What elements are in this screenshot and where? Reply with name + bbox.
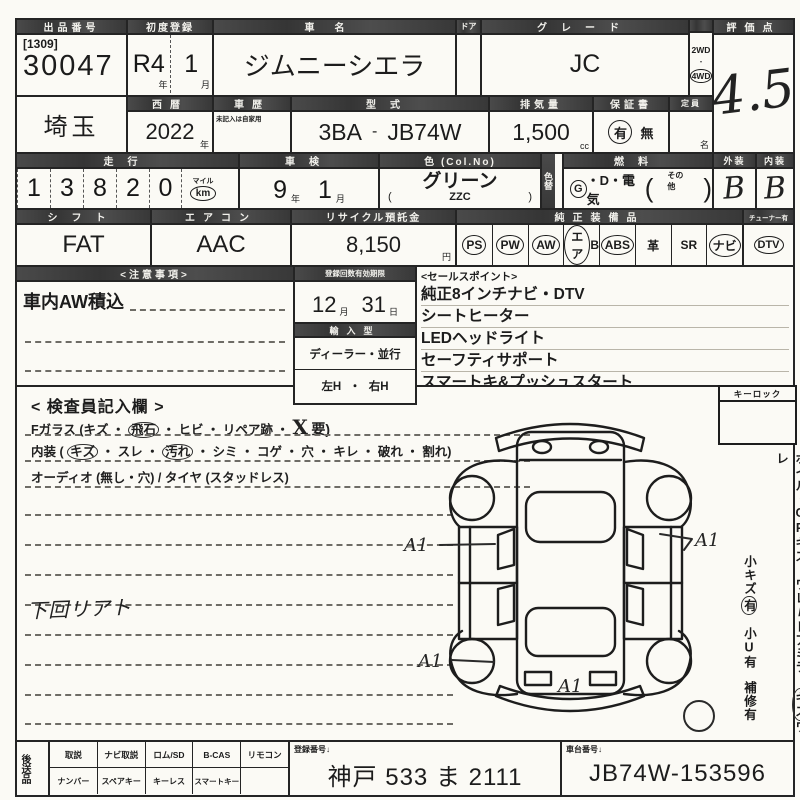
color-change-box: 色替 bbox=[540, 152, 564, 210]
recycle-box: リサイクル預託金 8,150 円 bbox=[290, 208, 457, 267]
shaken-box: 車検 9 年 1 月 bbox=[238, 152, 380, 210]
accessory-cell: キーレス bbox=[145, 768, 193, 794]
car-name-box: 車名 ジムニーシエラ bbox=[212, 18, 457, 97]
first-registration-box: 初度登録 R4 年 1 月 bbox=[126, 18, 214, 97]
windshield bbox=[526, 492, 615, 542]
a1-arrow-left bbox=[440, 544, 495, 545]
seireki-header: 西暦 bbox=[128, 97, 212, 112]
a1-arrow-right bbox=[660, 534, 692, 550]
model-header: 型式 bbox=[292, 97, 488, 112]
chassis-number-label: 車台番号↓ bbox=[562, 742, 793, 755]
interior-condition-line: 内装 ( キズ ・ スレ ・ 汚れ ・ シミ ・ コゲ ・ 穴 ・ キレ ・ 破… bbox=[31, 441, 451, 460]
shift-header: シフト bbox=[17, 210, 150, 225]
hand-drawn-circle bbox=[684, 701, 714, 731]
recycle-amount: 8,150 bbox=[346, 232, 401, 258]
fuel-box: 燃料 G ・D・電気 ( その他 ) bbox=[562, 152, 714, 210]
a1-mark: A1 bbox=[693, 530, 719, 551]
ac-value: AAC bbox=[196, 231, 245, 259]
accessory-cell: B-CAS bbox=[192, 742, 240, 767]
a1-mark: A1 bbox=[402, 535, 428, 556]
color-change-label: 色替 bbox=[542, 154, 555, 208]
prefecture-box: 埼玉 bbox=[15, 95, 128, 154]
accessory-cell: 取説 bbox=[50, 742, 97, 767]
registration-number-box: 登録番号↓ 神戸 533 ま 2111 bbox=[288, 740, 562, 797]
accessory-cell: ナビ取説 bbox=[97, 742, 145, 767]
auction-number-box: 出品番号 [1309] 30047 bbox=[15, 18, 128, 97]
capacity-box: 定員 名 bbox=[668, 95, 714, 154]
exterior-box: 外装 B bbox=[712, 152, 757, 210]
interior-grade-box: 内装 B bbox=[755, 152, 795, 210]
model-box: 型式 3BA - JB74W bbox=[290, 95, 490, 154]
shaken-month: 1 bbox=[318, 176, 332, 205]
shaken-year: 9 bbox=[273, 176, 287, 205]
validity-day: 31 bbox=[362, 292, 386, 318]
drive-2wd: 2WD bbox=[692, 45, 711, 55]
score-header: 評価点 bbox=[714, 20, 793, 35]
car-name-header: 車名 bbox=[214, 20, 455, 35]
grade-value: JC bbox=[570, 50, 601, 79]
sales-point-item: セーフティサポート bbox=[421, 350, 789, 372]
registration-number: 神戸 533 ま 2111 bbox=[328, 757, 523, 792]
interior-grade-handwritten: B bbox=[763, 170, 787, 206]
equipment-header: 純正装備品 bbox=[457, 210, 742, 225]
tuner-dtv-circled: DTV bbox=[754, 236, 784, 254]
lot-bracket: [1309] bbox=[23, 37, 120, 51]
validity-month: 12 bbox=[312, 292, 336, 318]
accessory-cell: スマートキー bbox=[192, 768, 240, 794]
history-box: 車歴 未記入は自家用 bbox=[212, 95, 292, 154]
door-box: ドア bbox=[455, 18, 482, 97]
color-name: グリーン bbox=[422, 172, 497, 191]
displacement-box: 排気量 1,500 cc bbox=[488, 95, 594, 154]
equipment-item-aw: AW bbox=[528, 225, 564, 265]
headlight-left bbox=[533, 441, 551, 453]
wheel-circled-ari: 有 bbox=[741, 596, 757, 616]
auction-sheet: 出品番号 [1309] 30047 初度登録 R4 年 1 月 車名 ジムニーシ… bbox=[0, 0, 800, 800]
shift-value: FAT bbox=[62, 231, 104, 259]
mileage-digit: 2 bbox=[126, 174, 140, 203]
color-box: 色 (Col.No) グリーン ( ZZC ) bbox=[378, 152, 542, 210]
equipment-item-leather: 革 bbox=[635, 225, 671, 265]
sales-point-item: シートヒーター bbox=[421, 306, 789, 328]
ac-box: エアコン AAC bbox=[150, 208, 292, 267]
accessory-cell: スペアキー bbox=[97, 768, 145, 794]
accessory-cell bbox=[240, 768, 288, 794]
a1-arrow-lower-left bbox=[452, 660, 494, 662]
sales-points-box: <セールスポイント> 純正8インチナビ・DTV シートヒーター LEDヘッドライ… bbox=[415, 265, 795, 387]
sales-point-item: 純正8インチナビ・DTV bbox=[421, 284, 789, 306]
warranty-header: 保証書 bbox=[594, 97, 668, 112]
exterior-grade-handwritten: B bbox=[722, 170, 746, 206]
inspector-title: < 検査員記入欄 > bbox=[31, 393, 165, 417]
fuel-header: 燃料 bbox=[564, 154, 712, 169]
registration-number-label: 登録番号↓ bbox=[290, 742, 560, 755]
equipment-item-abs: ABS bbox=[599, 225, 635, 265]
accessory-cell: リモコン bbox=[240, 742, 288, 767]
sales-points-label: <セールスポイント> bbox=[417, 267, 793, 284]
grade-header: グレード bbox=[482, 20, 688, 35]
displacement-value: 1,500 bbox=[512, 119, 570, 146]
ac-header: エアコン bbox=[152, 210, 290, 225]
headlight-right bbox=[590, 441, 608, 453]
prefecture: 埼玉 bbox=[44, 107, 100, 142]
caution-notes-header: <注意事項> bbox=[17, 267, 293, 282]
history-header: 車歴 bbox=[214, 97, 290, 112]
import-type-header: 輸入型 bbox=[295, 324, 415, 338]
rear-window bbox=[526, 608, 615, 656]
mileage-box: 走行 1 3 8 2 0 マイル km bbox=[15, 152, 240, 210]
tuner-header: チューナー有 bbox=[744, 210, 793, 225]
small-damage-notes-column: 小キズ有小U有補修有 bbox=[740, 555, 759, 735]
warranty-box: 保証書 有 無 bbox=[592, 95, 670, 154]
shift-box: シフト FAT bbox=[15, 208, 152, 267]
later-items-label: 後送品 bbox=[17, 742, 32, 795]
sales-point-item: LEDヘッドライト bbox=[421, 328, 789, 350]
tuner-box: チューナー有 DTV bbox=[742, 208, 795, 267]
warranty-yes-circled: 有 bbox=[608, 120, 632, 144]
warranty-no: 無 bbox=[640, 123, 653, 142]
interior-circled-kizu: キズ bbox=[67, 444, 98, 460]
fuel-g-circled: G bbox=[570, 180, 587, 198]
km-circled: km bbox=[190, 186, 216, 201]
a1-mark: A1 bbox=[416, 651, 442, 672]
auction-number-header: 出品番号 bbox=[17, 20, 126, 35]
model-code: 3BA bbox=[319, 119, 362, 146]
underbody-handwritten-note: 下回リアト bbox=[27, 591, 133, 624]
handle-position-row: 左H ・ 右H bbox=[295, 370, 415, 401]
registration-validity-box: 登録回数有効期限 12 月 31 日 bbox=[293, 265, 417, 324]
first-reg-year: R4 bbox=[133, 50, 165, 79]
score-handwritten: 4.5 bbox=[709, 58, 798, 128]
wheel-front-right bbox=[647, 476, 691, 520]
car-top-view-diagram: A1 A1 A1 A1 bbox=[392, 398, 742, 738]
chassis-number-box: 車台番号↓ JB74W-153596 bbox=[560, 740, 795, 797]
displacement-header: 排気量 bbox=[490, 97, 592, 112]
shaken-header: 車検 bbox=[240, 154, 378, 169]
audio-tire-line: オーディオ (無し・穴) / タイヤ (スタッドレス) bbox=[31, 467, 289, 486]
wheel-front-left bbox=[450, 476, 494, 520]
grade-box: グレード JC bbox=[480, 18, 690, 97]
mileage-header: 走行 bbox=[17, 154, 238, 169]
later-items-box: 後送品 bbox=[15, 740, 50, 797]
mile-label: マイル bbox=[193, 176, 214, 186]
door-header: ドア bbox=[457, 20, 480, 35]
mileage-digit: 3 bbox=[60, 174, 74, 203]
accessory-cell: ロム/SD bbox=[145, 742, 193, 767]
car-name: ジムニーシエラ bbox=[244, 46, 425, 83]
model-number: JB74W bbox=[387, 119, 461, 146]
equipment-item-sr: SR bbox=[671, 225, 707, 265]
capacity-header: 定員 bbox=[670, 97, 712, 112]
caution-note-text: 車内AW積込 bbox=[23, 288, 124, 314]
interior-circled-yogore: 汚れ bbox=[162, 444, 193, 460]
seireki-box: 西暦 2022 年 bbox=[126, 95, 214, 154]
registration-validity-header: 登録回数有効期限 bbox=[295, 267, 415, 282]
equipment-item-navi: ナビ bbox=[706, 225, 742, 265]
exterior-header: 外装 bbox=[714, 154, 755, 169]
color-header: 色 (Col.No) bbox=[380, 154, 540, 169]
first-reg-month: 1 bbox=[184, 50, 198, 79]
equipment-box: 純正装備品 PS PW AW エアB ABS 革 SR ナビ bbox=[455, 208, 744, 267]
interior-grade-header: 内装 bbox=[757, 154, 793, 169]
import-dealer-row: ディーラー・並行 bbox=[295, 338, 415, 370]
mirror-circled-kizu: キズ bbox=[792, 688, 800, 721]
inspector-area: < 検査員記入欄 > Fガラス (キズ ・ 飛石 ・ ヒビ ・ リペア跡 ・ X… bbox=[15, 385, 795, 742]
color-code: ZZC bbox=[449, 191, 470, 204]
history-note: 未記入は自家用 bbox=[214, 112, 290, 124]
mileage-digit: 1 bbox=[27, 174, 41, 203]
accessories-grid: 取説 ナビ取説 ロム/SD B-CAS リモコン ナンバー スペアキー キーレス… bbox=[48, 740, 290, 797]
caution-notes-box: <注意事項> 車内AW積込 bbox=[15, 265, 295, 387]
chassis-number: JB74W-153596 bbox=[589, 760, 766, 788]
score-box: 評価点 4.5 bbox=[712, 18, 795, 154]
first-registration-header: 初度登録 bbox=[128, 20, 212, 35]
wheel-mirror-notes-column: ホイル・CPキズ ワレ/ドアミラーキズワレ bbox=[772, 452, 800, 742]
recycle-header: リサイクル預託金 bbox=[292, 210, 455, 225]
import-type-box: 輸入型 ディーラー・並行 左H ・ 右H bbox=[293, 322, 417, 405]
auction-number: 30047 bbox=[23, 51, 120, 83]
mileage-digit: 0 bbox=[159, 174, 173, 203]
seireki-year: 2022 bbox=[146, 119, 195, 145]
mileage-digit: 8 bbox=[93, 174, 107, 203]
equipment-item-pw: PW bbox=[492, 225, 528, 265]
equipment-item-airbag: エアB bbox=[563, 225, 599, 265]
equipment-item-ps: PS bbox=[457, 225, 492, 265]
a1-mark: A1 bbox=[556, 676, 582, 697]
accessory-cell: ナンバー bbox=[50, 768, 97, 794]
fuel-other-label: その他 bbox=[667, 170, 689, 192]
